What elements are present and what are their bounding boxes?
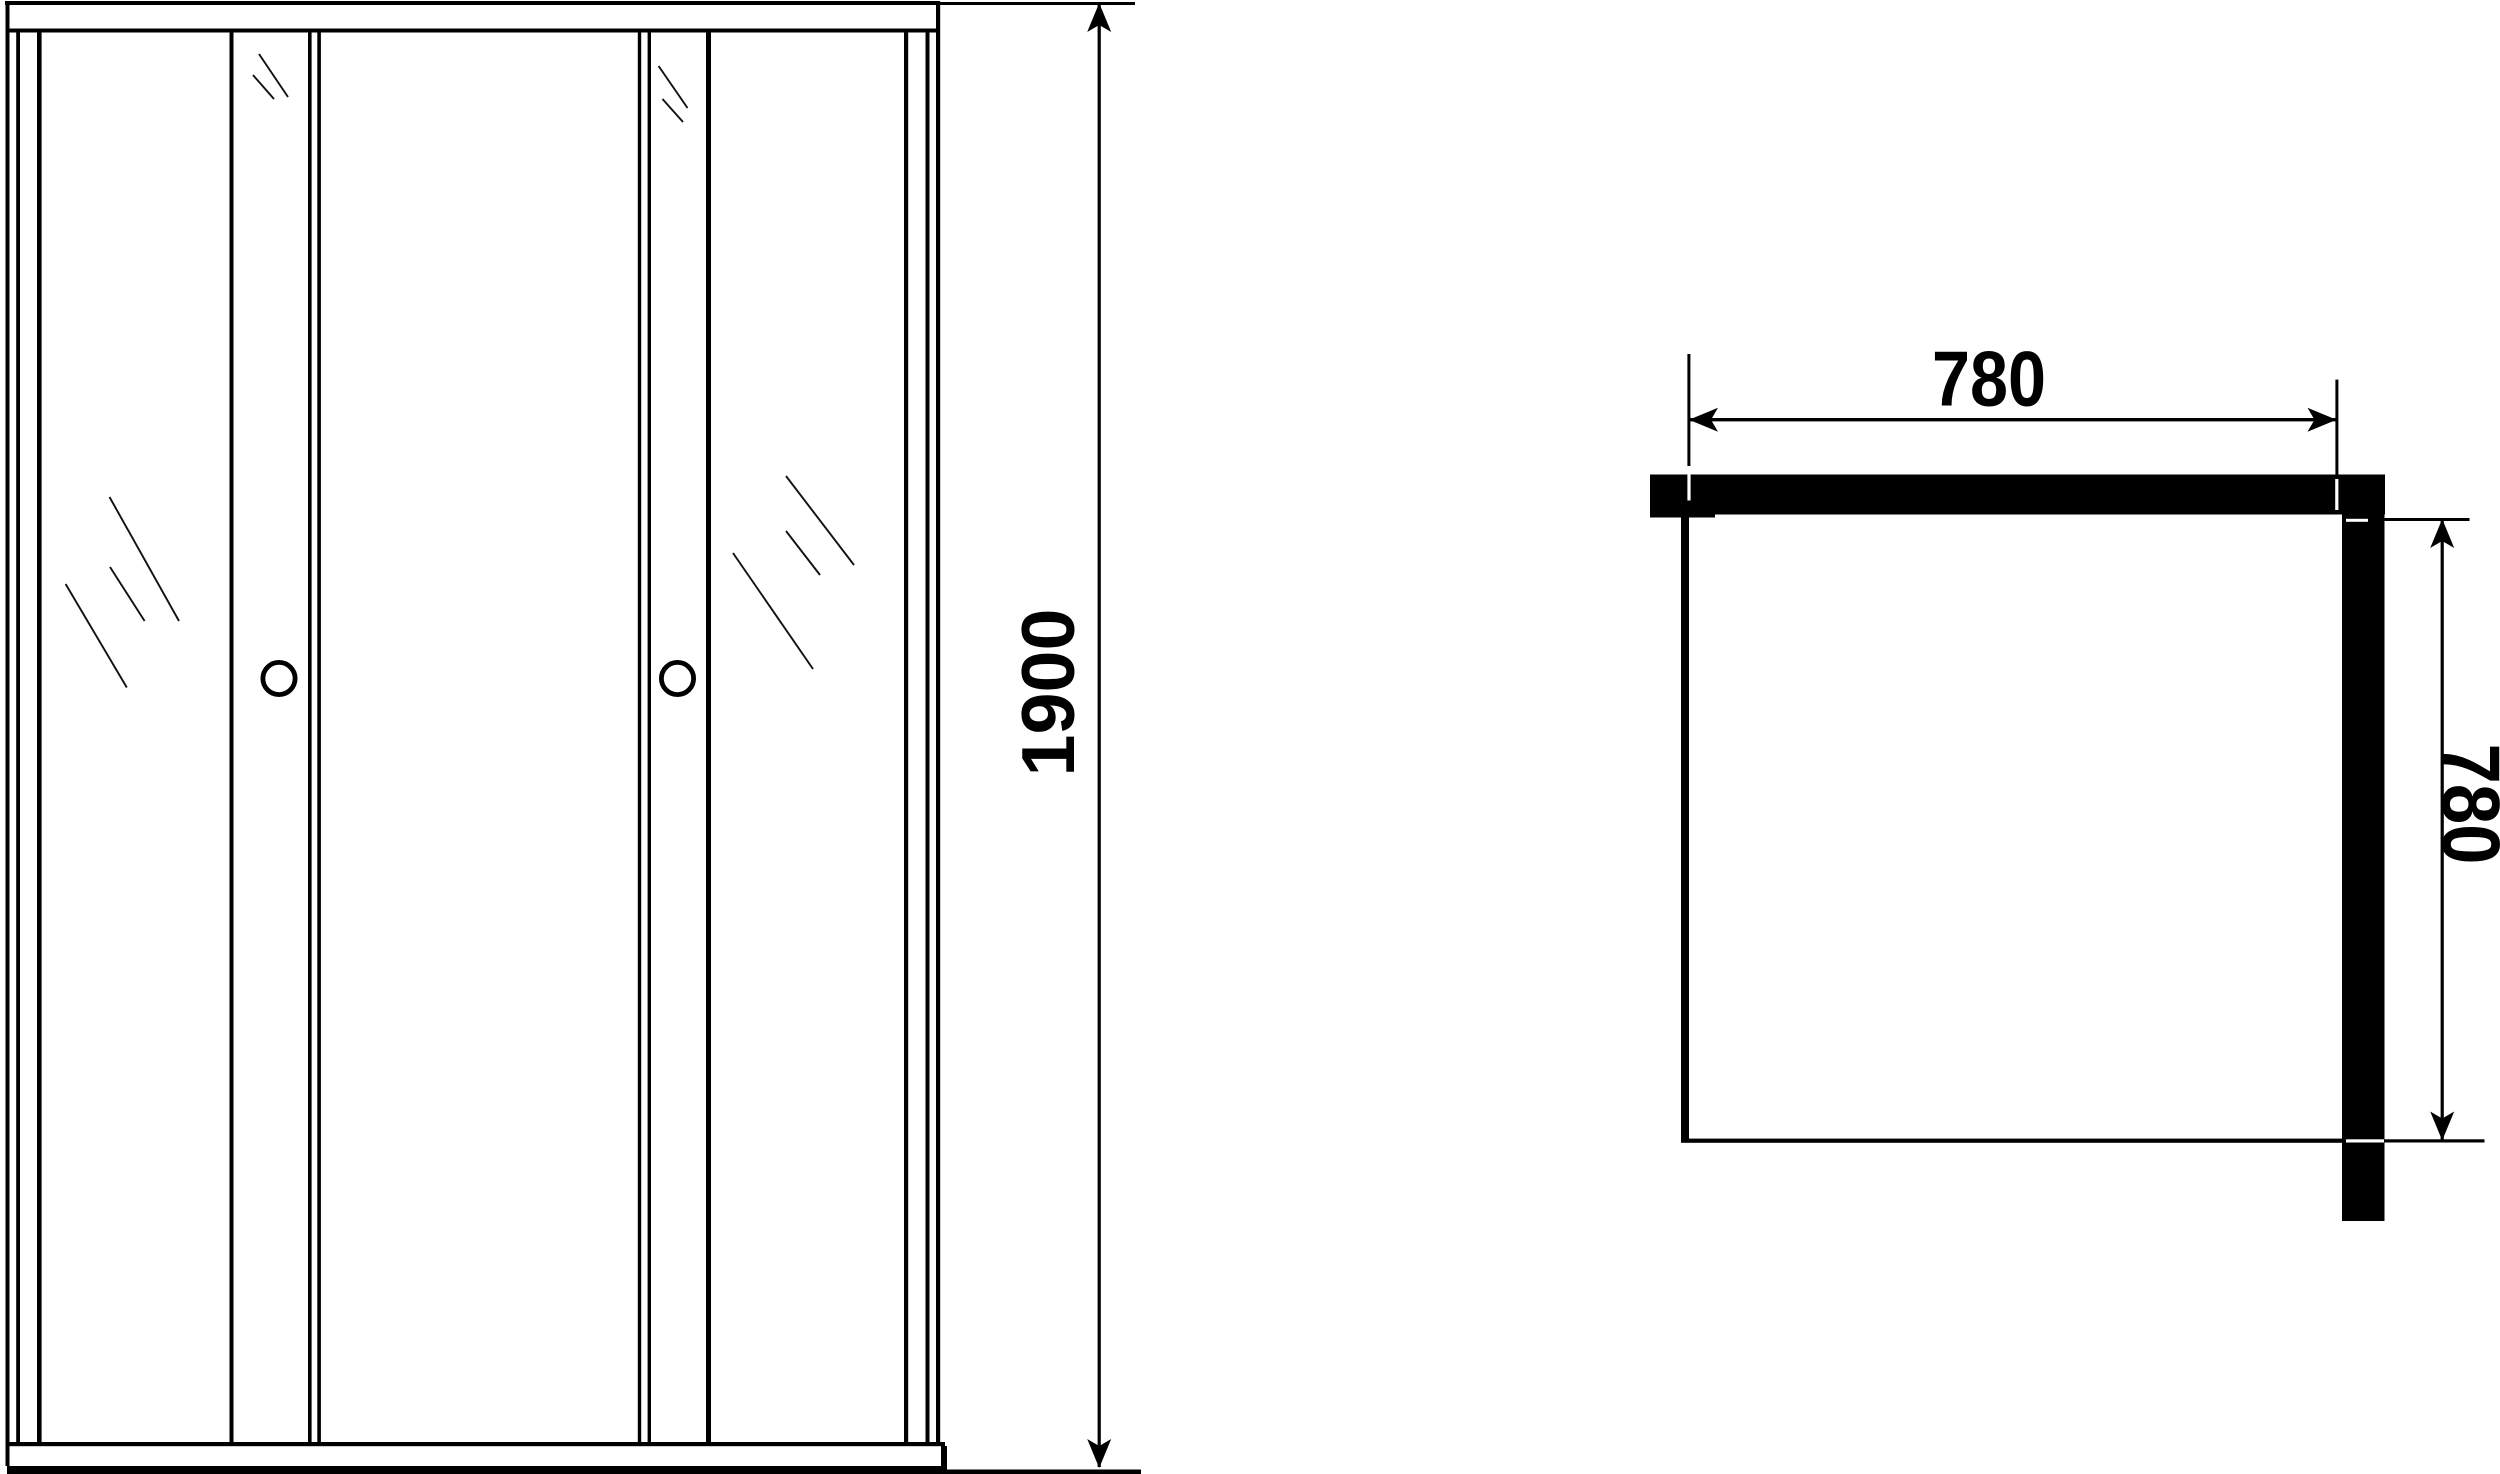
- svg-text:1900: 1900: [1006, 609, 1090, 777]
- svg-text:780: 780: [1932, 334, 2046, 422]
- svg-text:780: 780: [2425, 744, 2500, 865]
